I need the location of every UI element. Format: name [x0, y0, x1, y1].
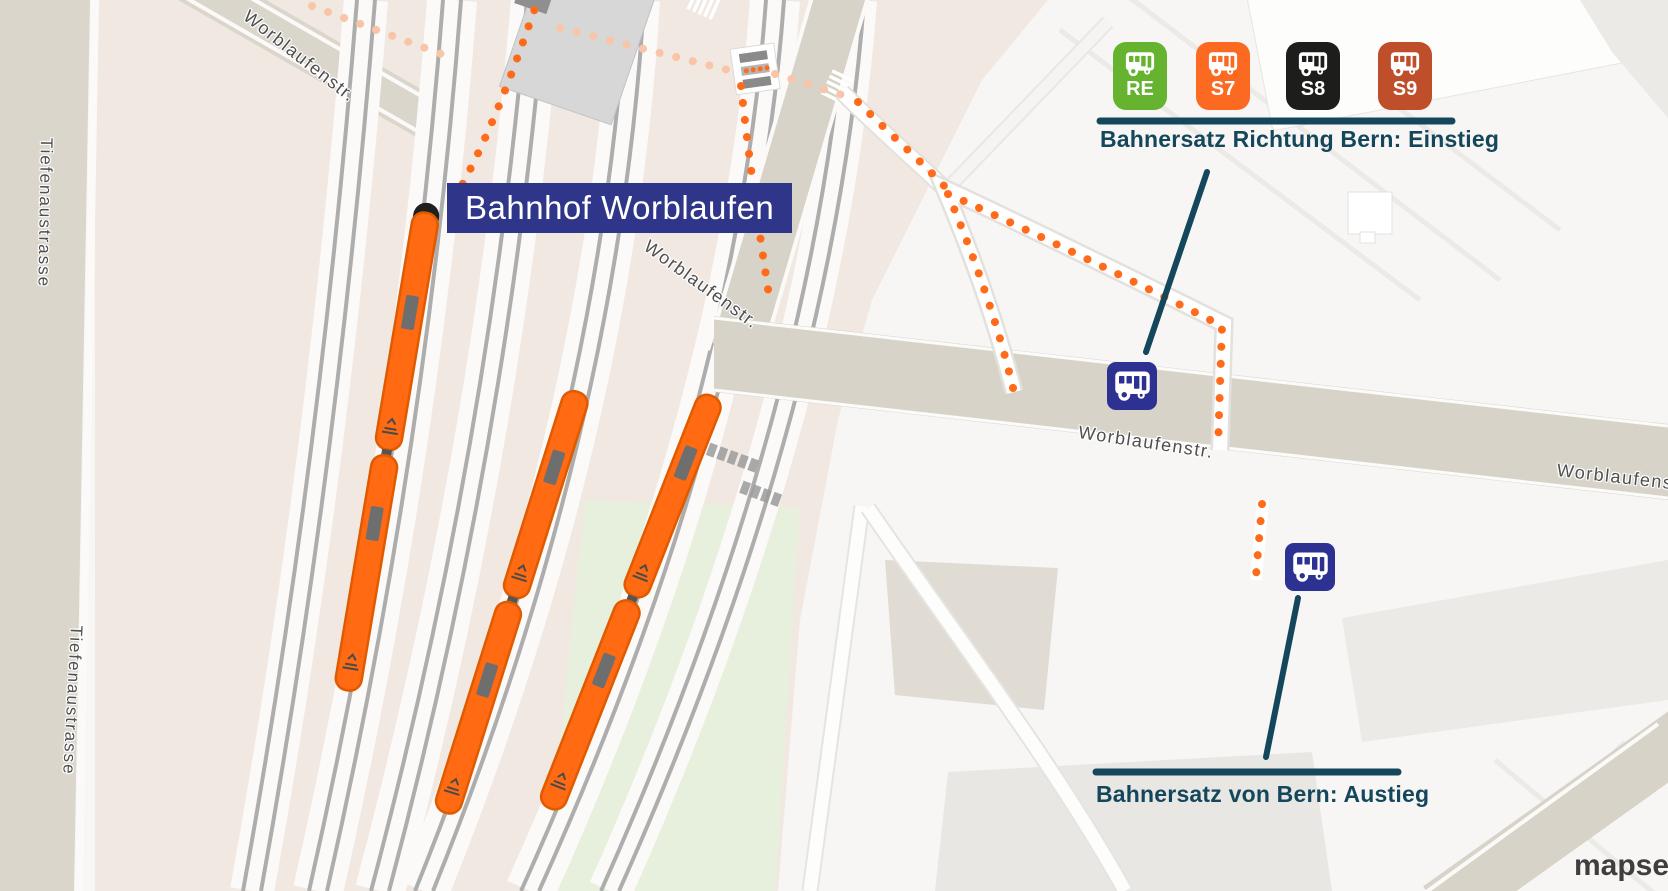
street-label-tiefenaustrasse: Tiefenaustrasse	[33, 138, 56, 289]
ausstieg-title: Bahnersatz von Bern: Austieg	[1096, 781, 1429, 808]
line-badge-label: S9	[1393, 78, 1417, 101]
line-badge-s9: S9	[1378, 42, 1432, 110]
bus-stop-einstieg	[1107, 362, 1157, 410]
bus-icon	[1208, 51, 1238, 78]
bus-icon	[1114, 370, 1151, 403]
map-screenshot: Bahnhof Worblaufen RE S7 S8 S9 Bahnersat…	[0, 0, 1668, 891]
line-badge-re: RE	[1113, 42, 1167, 110]
line-badge-label: S8	[1301, 78, 1325, 101]
einstieg-title: Bahnersatz Richtung Bern: Einstieg	[1100, 126, 1499, 153]
mapset-logo: mapset	[1574, 849, 1668, 883]
bus-icon	[1292, 551, 1329, 584]
line-badge-s7: S7	[1196, 42, 1250, 110]
station-name-label: Bahnhof Worblaufen	[447, 183, 792, 233]
bus-icon	[1125, 51, 1155, 78]
line-badge-label: S7	[1211, 78, 1235, 101]
bus-icon	[1390, 51, 1420, 78]
line-badge-s8: S8	[1286, 42, 1340, 110]
bus-stop-ausstieg	[1285, 543, 1335, 591]
bus-icon	[1298, 51, 1328, 78]
line-badge-label: RE	[1126, 78, 1154, 101]
